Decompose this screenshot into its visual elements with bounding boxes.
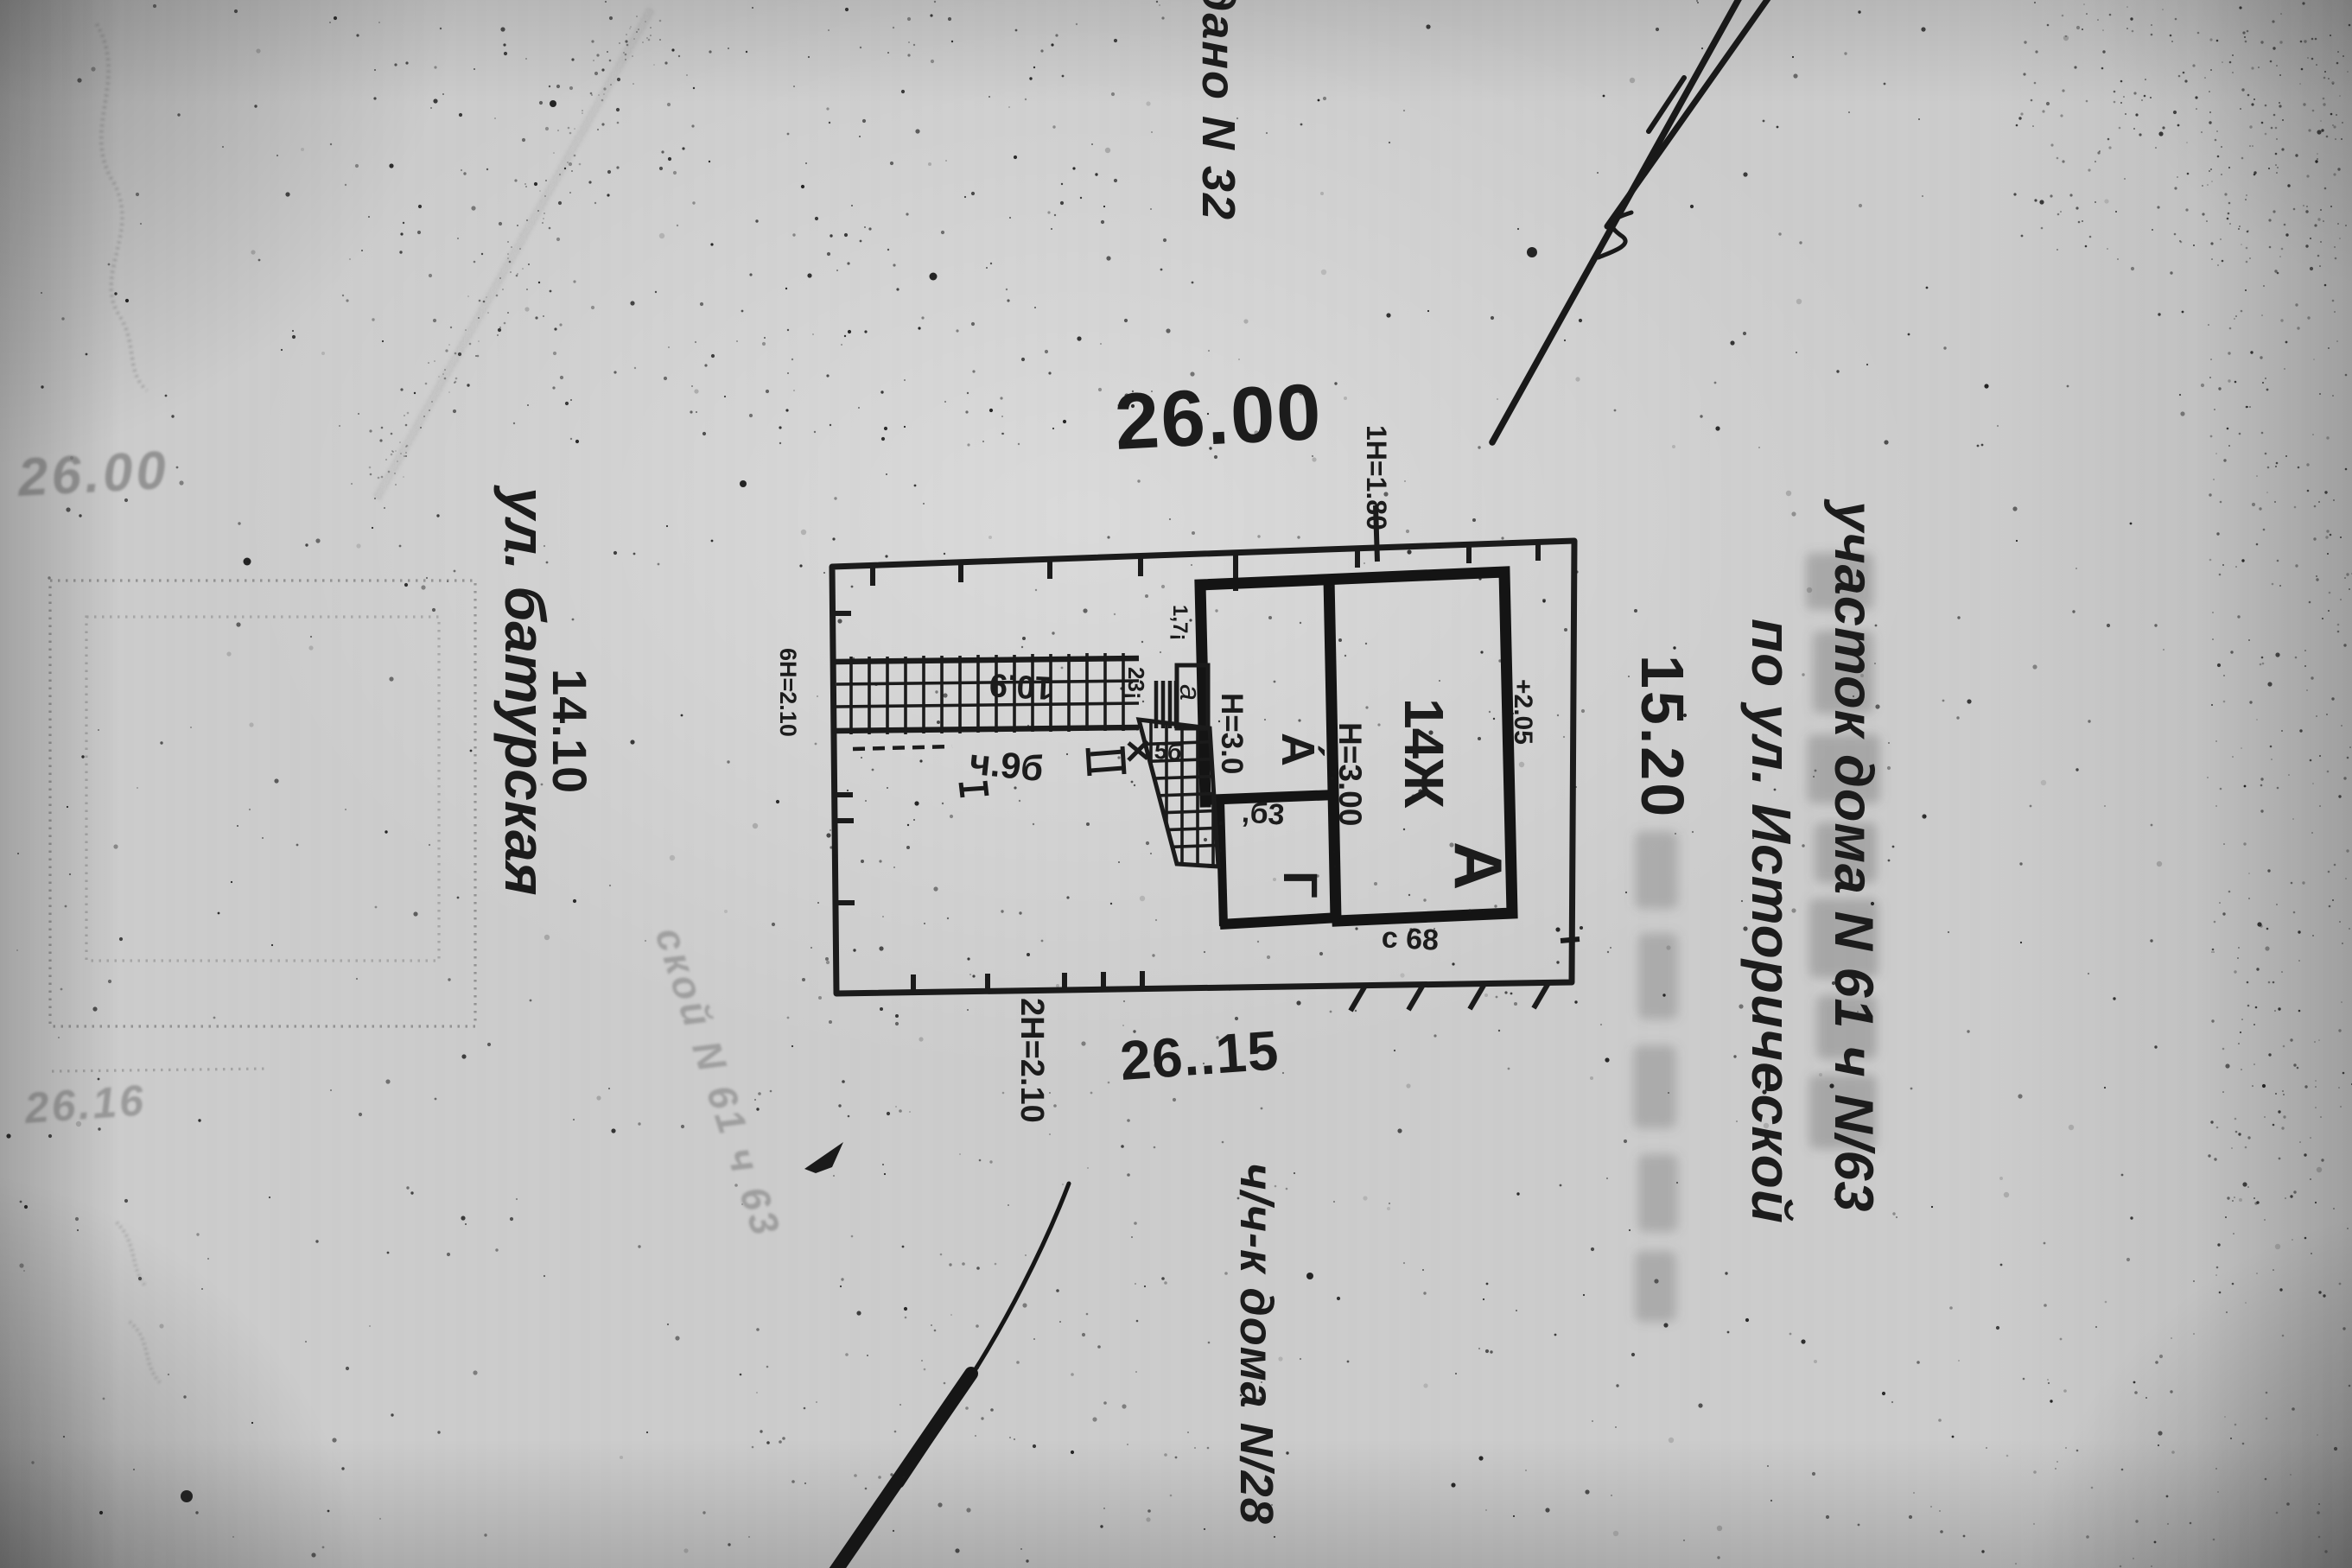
- svg-text:5б: 5б: [1154, 738, 1183, 766]
- svg-text:ской N 61 ч 63: ской N 61 ч 63: [646, 922, 789, 1243]
- svg-text:23¡: 23¡: [1123, 667, 1149, 700]
- svg-text:ул. батурская: ул. батурская: [493, 485, 557, 896]
- svg-text:26.16: 26.16: [22, 1076, 148, 1133]
- svg-text:H=3.00: H=3.00: [1332, 722, 1368, 826]
- svg-text:1H=1.80: 1H=1.80: [1361, 425, 1392, 530]
- svg-text:15.20: 15.20: [1629, 655, 1696, 819]
- svg-text:2H=2.10: 2H=2.10: [1014, 998, 1050, 1123]
- svg-text:с 68: с 68: [1381, 921, 1440, 956]
- svg-text:Г: Г: [1274, 871, 1328, 898]
- svg-text:+2.05: +2.05: [1509, 679, 1537, 745]
- svg-text:по ул. Исторической: по ул. Исторической: [1740, 619, 1802, 1224]
- svg-text:,б3: ,б3: [1241, 796, 1286, 831]
- svg-text:26.00: 26.00: [16, 441, 171, 508]
- svg-text:А́: А́: [1272, 733, 1325, 766]
- svg-text:10.9: 10.9: [988, 666, 1054, 706]
- svg-text:26..15: 26..15: [1118, 1019, 1281, 1092]
- svg-text:1,7¡: 1,7¡: [1168, 605, 1192, 640]
- svg-text:А: А: [1440, 841, 1516, 890]
- svg-text:участок дома N 61 ч N/63: участок дома N 61 ч N/63: [1823, 498, 1884, 1212]
- svg-text:дано N 32: дано N 32: [1192, 0, 1244, 221]
- svg-text:ч/ч-к дома N/28: ч/ч-к дома N/28: [1230, 1163, 1282, 1525]
- svg-text:6H=2.10: 6H=2.10: [775, 648, 801, 737]
- svg-text:а: а: [1173, 684, 1206, 701]
- svg-text:H=3.0: H=3.0: [1215, 693, 1249, 774]
- svg-text:ч.9б: ч.9б: [968, 741, 1046, 790]
- svg-text:14Ж: 14Ж: [1393, 698, 1455, 809]
- svg-text:26.00: 26.00: [1113, 368, 1325, 467]
